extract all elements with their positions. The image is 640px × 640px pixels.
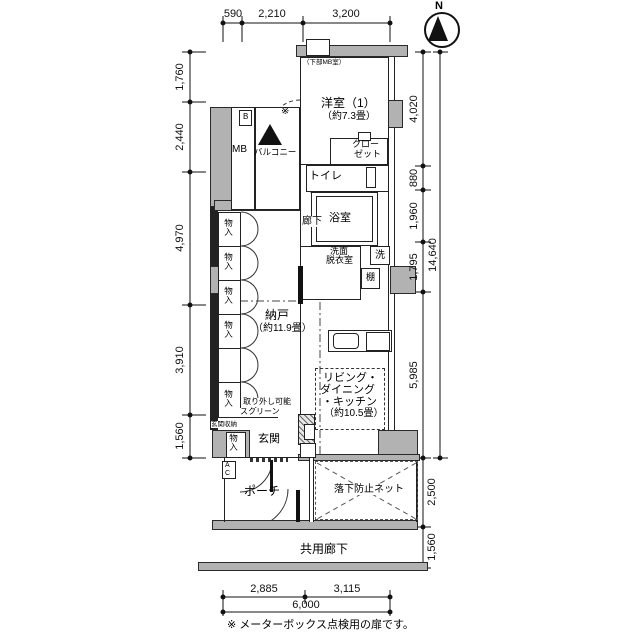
dim-top-3200: 3,200 xyxy=(332,8,360,20)
dim-right-4020: 4,020 xyxy=(408,95,420,123)
dim-left-1760: 1,760 xyxy=(174,63,186,91)
dim-top-590: 590 xyxy=(224,8,242,20)
left-wall xyxy=(210,207,218,430)
dim-top-2210: 2,210 xyxy=(258,8,286,20)
porch-bottom-wall xyxy=(212,520,418,530)
closet-divider xyxy=(218,280,240,281)
closet-column xyxy=(218,212,241,418)
closet-divider xyxy=(218,314,240,315)
dim-bottom-total-6000: 6,000 xyxy=(292,599,320,611)
closet-small-label: 物入 xyxy=(223,321,234,339)
closet-small-label: 物入 xyxy=(228,434,239,452)
screen-leader-line xyxy=(240,417,278,418)
dim-left-4970: 4,970 xyxy=(174,224,186,252)
dim-right-5985: 5,985 xyxy=(408,361,420,389)
ldk-label-3: ・キッチン xyxy=(322,396,377,408)
dim-right-1795: 1,795 xyxy=(408,253,420,281)
closet-small-label: 物入 xyxy=(223,219,234,237)
closet-small-label: 物入 xyxy=(223,390,234,408)
closet-divider xyxy=(218,246,240,247)
closet-divider xyxy=(218,348,240,349)
dim-right-2500: 2,500 xyxy=(426,478,438,506)
closet-label-2: ゼット xyxy=(354,150,381,160)
dim-bottom-3115: 3,115 xyxy=(334,583,361,595)
ldk-bottom-wall xyxy=(298,454,420,461)
entrance-step-dots xyxy=(250,458,288,462)
dim-right-1960: 1,960 xyxy=(408,202,420,230)
kitchen-sink xyxy=(333,333,359,349)
hallway-label: 廊下 xyxy=(302,216,322,227)
balcony-label: バルコニー xyxy=(254,148,296,157)
western-room-size: （約7.3畳） xyxy=(322,111,376,122)
meter-box-label: MB xyxy=(232,144,247,155)
washroom-label-2: 脱衣室 xyxy=(326,256,353,266)
toilet-tank xyxy=(366,167,376,188)
ldk-label-2: ダイニング xyxy=(320,384,375,396)
porch-label: ポーチ xyxy=(244,485,280,498)
footnote: ※ メーターボックス点検用の扉です。 xyxy=(227,619,414,631)
bath-label: 浴室 xyxy=(329,212,351,224)
service-box xyxy=(304,424,315,440)
top-window xyxy=(306,39,330,56)
common-corridor-label: 共用廊下 xyxy=(300,543,348,556)
under-window-annotation: （下部MB室） xyxy=(303,59,345,66)
closet-door-arcs xyxy=(241,212,258,416)
washer-label: 洗 xyxy=(375,250,385,261)
dim-left-1560: 1,560 xyxy=(174,422,186,450)
closet-divider xyxy=(218,382,240,383)
floor-plan: 洋室（1） （約7.3畳） クロー ゼット トイレ 浴室 廊下 洗面 脱衣室 洗… xyxy=(0,0,640,640)
screen-annotation-1: 取り外し可能 xyxy=(243,398,291,407)
ldk-label-1: リビング・ xyxy=(323,372,378,384)
storage-room-door-leaf xyxy=(298,266,303,304)
storage-room-label: 納戸 xyxy=(265,309,289,322)
dim-right-1560: 1,560 xyxy=(426,533,438,561)
kitchen-stove xyxy=(366,332,390,351)
compass-needle-icon xyxy=(428,16,448,41)
porch-gate-door-leaf xyxy=(296,490,300,522)
corridor-bottom-edge xyxy=(198,562,428,571)
dim-right-total-14640: 14,640 xyxy=(427,238,439,272)
ac-label-c: C xyxy=(225,470,230,478)
net-label: 落下防止ネット xyxy=(334,484,404,495)
shelf-label: 棚 xyxy=(366,273,375,283)
entrance-label: 玄関 xyxy=(258,433,280,445)
compass-north-label: N xyxy=(435,0,443,12)
b-box-label: B xyxy=(243,113,248,122)
western-room-label: 洋室（1） xyxy=(321,97,376,110)
service-box-crossed xyxy=(300,443,316,458)
left-upper-pillar xyxy=(210,107,233,207)
dim-left-3910: 3,910 xyxy=(174,346,186,374)
ldk-size: （約10.5畳） xyxy=(324,408,383,419)
door-asterisk-mark: ※ xyxy=(281,106,289,117)
closet-small-label: 物入 xyxy=(223,287,234,305)
screen-annotation-2: スクリーン xyxy=(240,408,280,417)
dim-left-2440: 2,440 xyxy=(174,123,186,151)
porch-net-divider xyxy=(309,458,314,522)
ac-label-a: A xyxy=(225,462,230,470)
balcony-room xyxy=(255,107,300,210)
toilet-label: トイレ xyxy=(309,170,342,182)
balcony-triangle-icon xyxy=(258,124,282,145)
dim-bottom-2885: 2,885 xyxy=(250,583,278,595)
closet-small-label: 物入 xyxy=(223,253,234,271)
entrance-storage-label: 玄関収納 xyxy=(211,421,237,428)
dim-right-880: 880 xyxy=(408,169,420,187)
storage-room-size: （約11.9畳） xyxy=(253,323,312,334)
